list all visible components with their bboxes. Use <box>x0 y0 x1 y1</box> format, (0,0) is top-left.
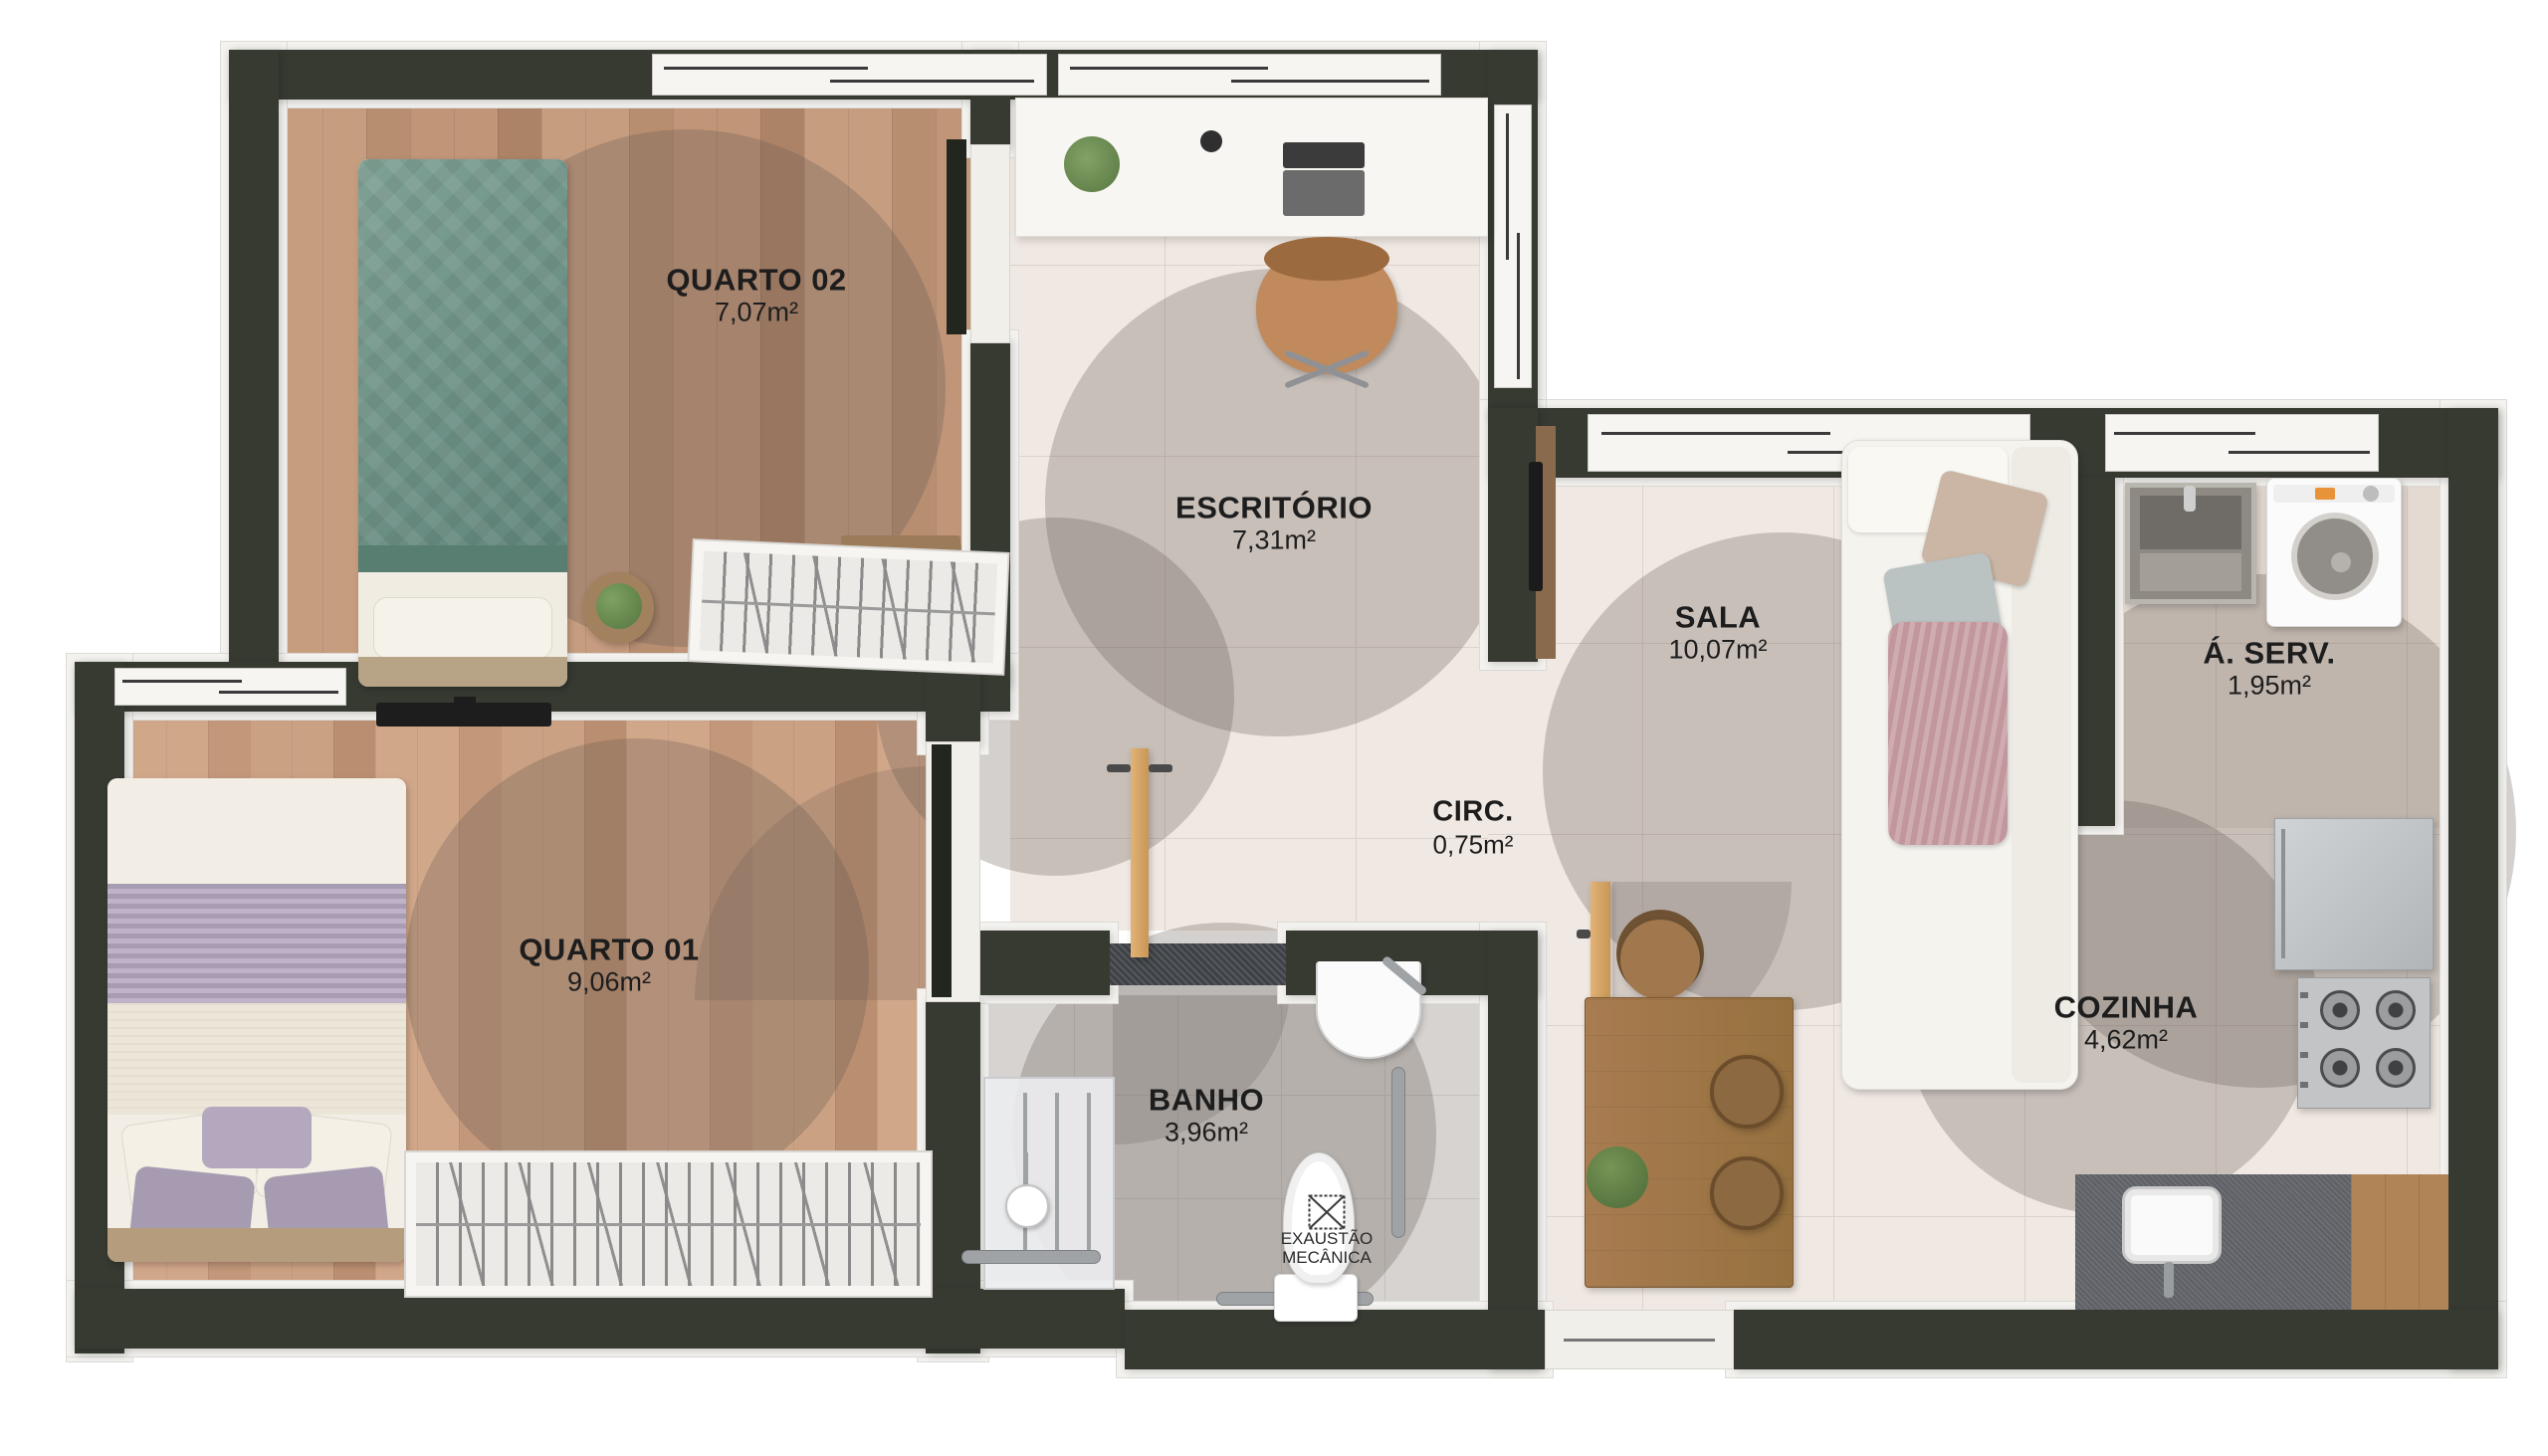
door-banho <box>1131 748 1149 957</box>
tv <box>1529 462 1543 591</box>
room-area: 3,96m² <box>1149 1118 1264 1147</box>
floor-plan: QUARTO 02 7,07m² ESCRITÓRIO 7,31m² SALA … <box>0 0 2548 1456</box>
bed-cream-blanket <box>107 1003 406 1115</box>
stove-burner <box>2376 1048 2416 1088</box>
room-area: 10,07m² <box>1668 635 1767 665</box>
window-quarto-01 <box>114 668 346 706</box>
room-label-escritorio: ESCRITÓRIO 7,31m² <box>1175 491 1373 555</box>
room-name: BANHO <box>1149 1083 1264 1118</box>
door-entrance-handle <box>1577 930 1591 938</box>
window-escritorio <box>1058 54 1441 96</box>
room-area: 7,31m² <box>1175 525 1373 555</box>
plant <box>596 583 642 629</box>
bed-pillow <box>373 597 552 659</box>
wall <box>980 931 1110 995</box>
dining-chair <box>1620 920 1700 999</box>
room-name: COZINHA <box>2054 990 2199 1025</box>
desk <box>1015 98 1488 237</box>
wall <box>1734 1310 2498 1369</box>
grab-bar <box>961 1250 1101 1264</box>
room-name: ESCRITÓRIO <box>1175 491 1373 525</box>
bed-base <box>358 657 567 687</box>
mechanical-exhaust-icon <box>1308 1194 1346 1230</box>
office-chair-back <box>1264 237 1389 281</box>
bed-sheet-top <box>107 778 406 884</box>
threshold-entrance <box>1545 1310 1734 1369</box>
door-quarto-02 <box>947 139 966 334</box>
window-quarto-02 <box>652 54 1047 96</box>
kitchen-counter-wood <box>2351 1174 2448 1310</box>
washing-machine <box>2266 478 2402 627</box>
window-area-servico <box>2105 414 2379 472</box>
door-banho-handle <box>1107 764 1131 772</box>
kitchen-faucet <box>2164 1262 2174 1298</box>
tv-mount <box>454 697 476 705</box>
wall <box>926 662 980 746</box>
office-chair <box>1256 245 1397 374</box>
wall <box>2448 408 2498 1369</box>
faucet <box>2184 486 2196 512</box>
blanket <box>1888 622 2008 845</box>
room-label-quarto-01: QUARTO 01 9,06m² <box>519 933 699 997</box>
laptop <box>1283 142 1365 168</box>
wall <box>229 50 279 672</box>
shower-slats <box>995 1093 1107 1258</box>
dining-table <box>1585 997 1794 1288</box>
stool <box>1710 1055 1784 1129</box>
door-banho-handle <box>1149 764 1172 772</box>
room-name: QUARTO 02 <box>666 263 846 298</box>
room-area: 7,07m² <box>666 298 846 327</box>
mechanical-exhaust-label: EXAUSTÃO MECÂNICA <box>1281 1229 1374 1267</box>
kitchen-sink <box>2122 1186 2222 1264</box>
single-bed <box>358 159 567 687</box>
desk-plant <box>1064 136 1120 192</box>
door-quarto-01 <box>932 744 952 997</box>
room-name: SALA <box>1668 600 1767 635</box>
room-area: 4,62m² <box>2054 1025 2199 1055</box>
room-label-cozinha: COZINHA 4,62m² <box>2054 990 2199 1055</box>
washer-knob <box>2363 486 2379 502</box>
wall <box>75 1289 1125 1349</box>
window-escritorio-lateral <box>1494 104 1532 388</box>
wardrobe-quarto-02 <box>690 540 1008 674</box>
stove-burner <box>2376 990 2416 1030</box>
bed-quilt-fold <box>358 545 567 572</box>
room-label-banho: BANHO 3,96m² <box>1149 1083 1264 1147</box>
stove-knobs <box>2300 992 2308 1096</box>
room-label-sala: SALA 10,07m² <box>1668 600 1767 665</box>
threshold-quarto-02 <box>970 144 1010 343</box>
room-area: 9,06m² <box>519 967 699 997</box>
laundry-tank <box>2125 483 2256 604</box>
stool <box>1710 1156 1784 1230</box>
grab-bar <box>1391 1067 1405 1238</box>
room-name: QUARTO 01 <box>519 933 699 967</box>
exhaust-line-2: MECÂNICA <box>1281 1248 1374 1267</box>
room-label-circulacao: CIRC. 0,75m² <box>1432 795 1513 860</box>
bed-quilt <box>358 159 567 572</box>
exhaust-line-1: EXAUSTÃO <box>1281 1229 1374 1248</box>
washer-drum-hub <box>2331 552 2351 572</box>
room-name: CIRC. <box>1432 795 1513 830</box>
stove <box>2297 977 2431 1109</box>
bed-pillow-accent <box>202 1107 312 1168</box>
room-area: 1,95m² <box>2203 671 2335 701</box>
room-label-area-servico: Á. SERV. 1,95m² <box>2203 636 2335 701</box>
room-name: Á. SERV. <box>2203 636 2335 671</box>
stove-burner <box>2320 1048 2360 1088</box>
desk-cup <box>1200 130 1222 152</box>
bed-striped-blanket <box>107 884 406 1003</box>
washer-control-accent <box>2315 488 2335 500</box>
sofa <box>1841 440 2078 1090</box>
washer-drum <box>2291 513 2379 600</box>
refrigerator <box>2274 818 2434 970</box>
wardrobe-quarto-01 <box>406 1152 931 1296</box>
laundry-tank-board <box>2140 553 2241 591</box>
laptop-keyboard <box>1283 170 1365 216</box>
tv <box>376 703 551 727</box>
room-area: 0,75m² <box>1432 830 1513 860</box>
plant <box>1587 1146 1648 1208</box>
shower-head <box>1005 1184 1049 1228</box>
double-bed <box>107 778 406 1262</box>
wall <box>1488 931 1538 1369</box>
room-label-quarto-02: QUARTO 02 7,07m² <box>666 263 846 327</box>
refrigerator-handle <box>2281 829 2285 958</box>
stove-burner <box>2320 990 2360 1030</box>
bed-base <box>107 1228 406 1262</box>
